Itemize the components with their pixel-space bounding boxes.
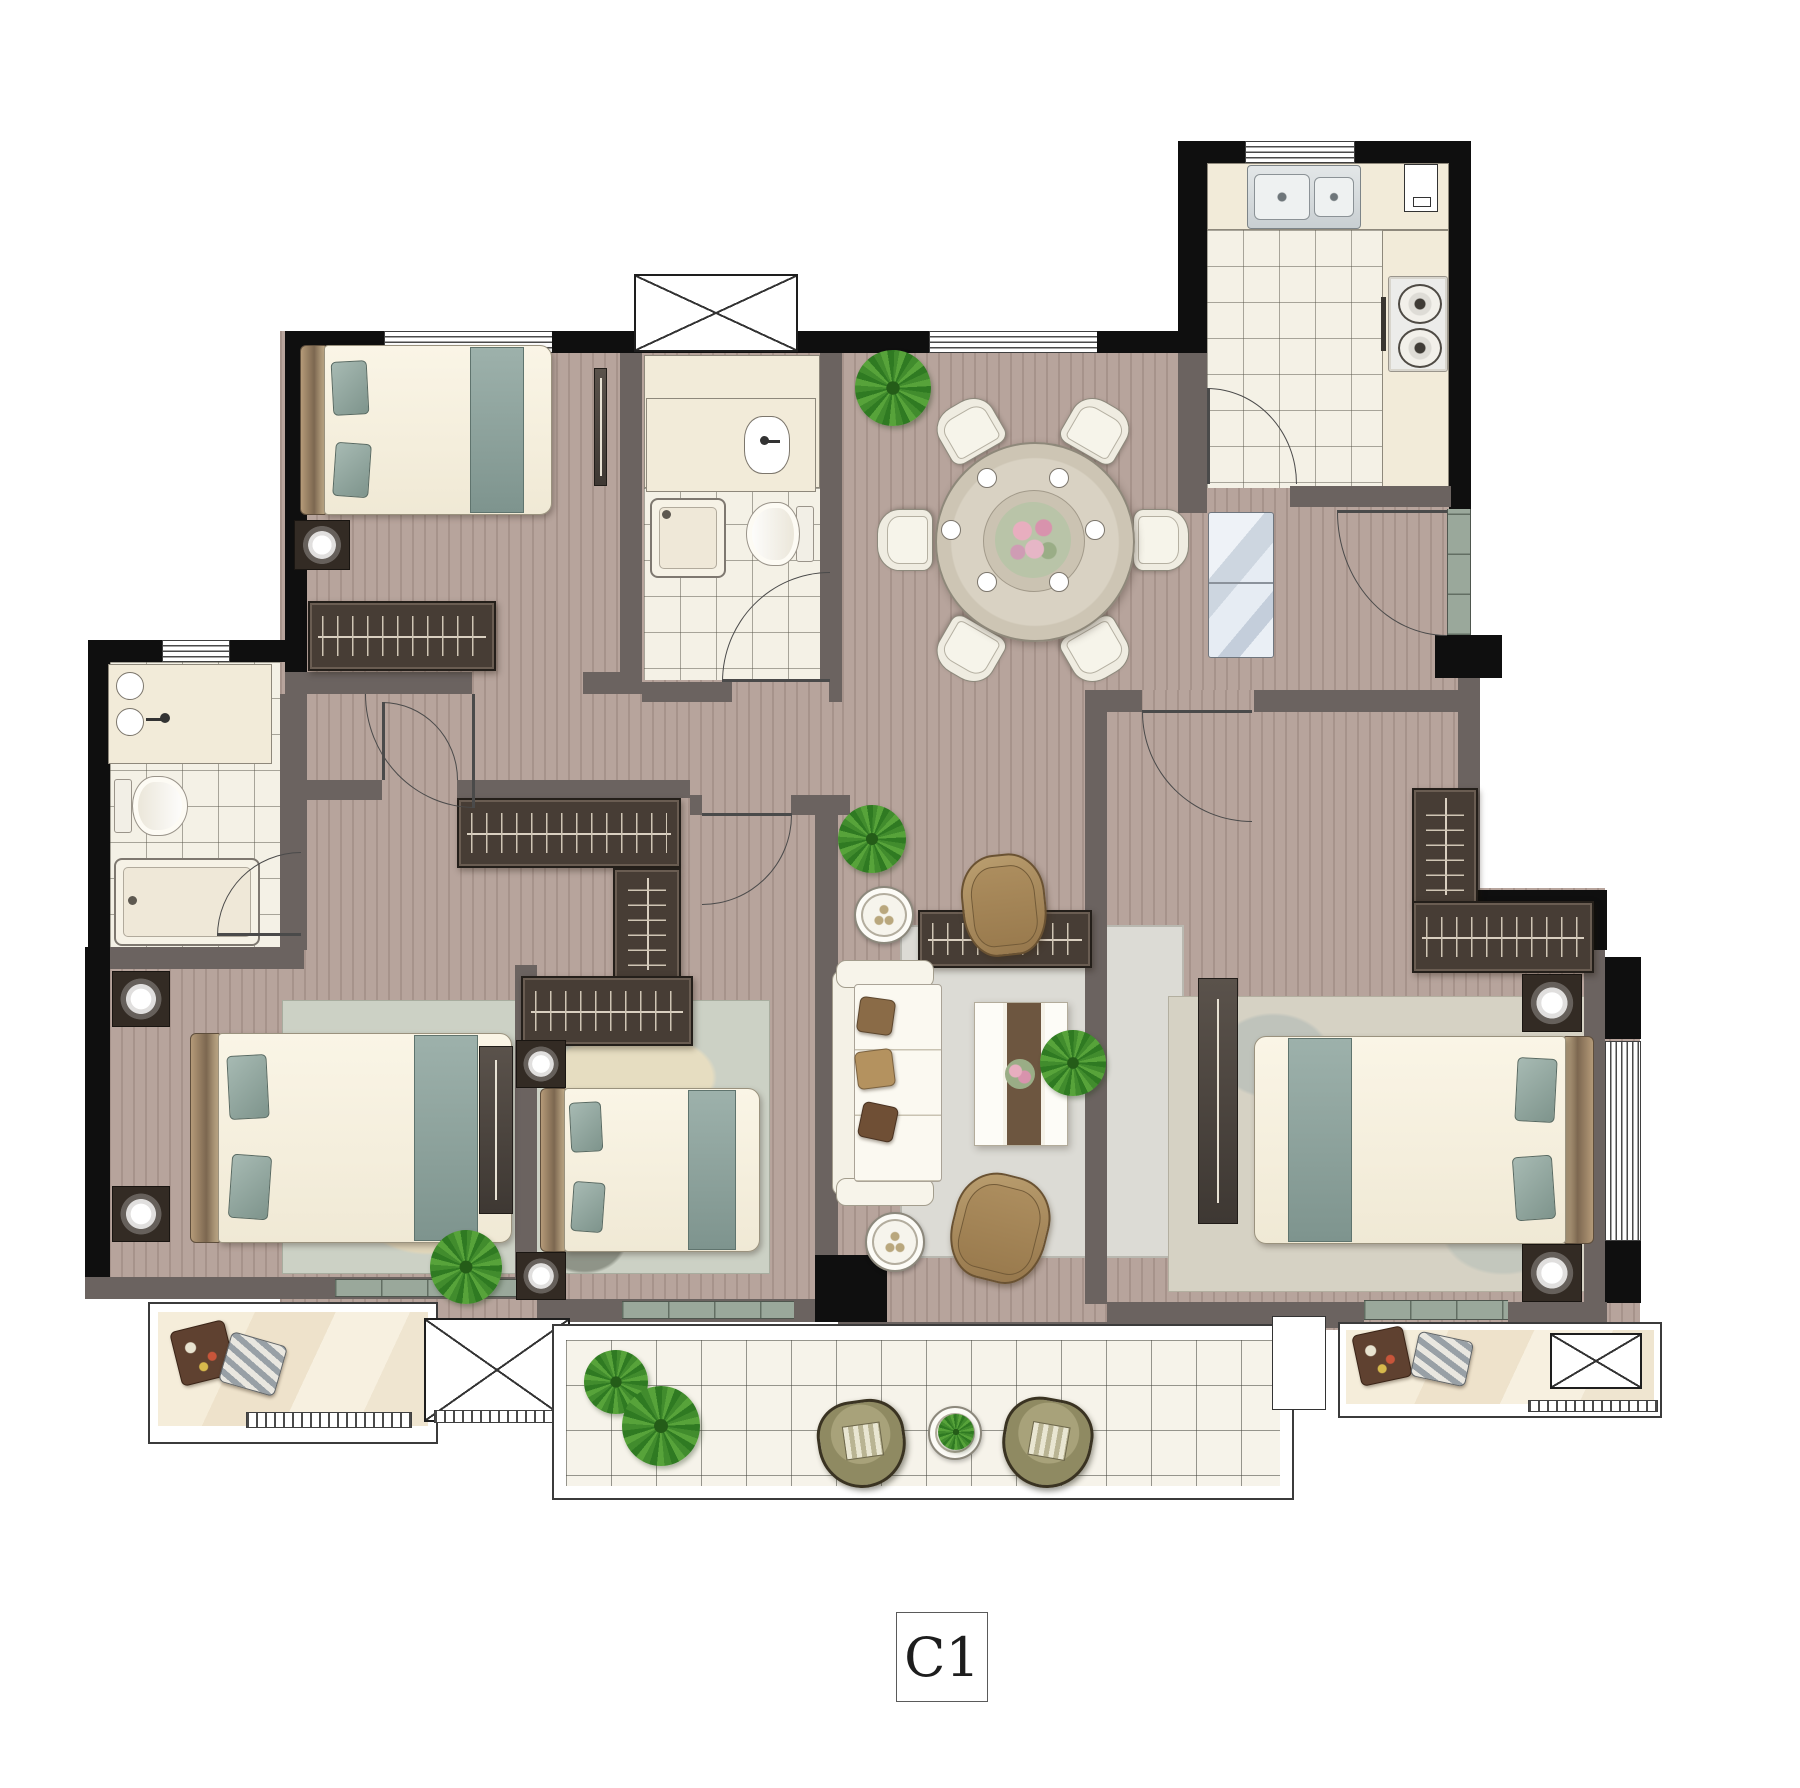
floor-plan-canvas: C1 bbox=[0, 0, 1800, 1788]
toilet-bathroom-left bbox=[114, 776, 188, 834]
place-setting bbox=[1049, 572, 1069, 592]
sink bbox=[744, 416, 790, 474]
wall bbox=[1107, 690, 1142, 712]
wardrobe-corridor-vertical bbox=[613, 868, 681, 980]
pillow bbox=[332, 442, 372, 498]
railing bbox=[1528, 1400, 1658, 1412]
window-bedroom-right-bay bbox=[1605, 1041, 1641, 1241]
plant-dining bbox=[855, 350, 931, 426]
sofa-pillow bbox=[857, 1101, 900, 1144]
bed-runner bbox=[1288, 1038, 1352, 1242]
railing bbox=[434, 1410, 560, 1423]
sink bbox=[116, 672, 144, 700]
door-leaf bbox=[1142, 710, 1252, 713]
door-leaf bbox=[1207, 388, 1210, 484]
stove-controls bbox=[1381, 297, 1386, 351]
wardrobe-bedroom-top-left bbox=[308, 601, 496, 671]
tv-console-master bbox=[479, 1046, 513, 1214]
toilet-bowl bbox=[746, 502, 800, 566]
unit-label-box: C1 bbox=[896, 1612, 988, 1702]
headboard bbox=[540, 1088, 566, 1252]
door-leaf bbox=[382, 702, 385, 780]
faucet-dot bbox=[160, 713, 170, 723]
kitchen-appliance bbox=[1404, 164, 1438, 212]
pillow bbox=[1512, 1155, 1556, 1222]
duct-shaft-bottom-left bbox=[424, 1318, 570, 1422]
plant bbox=[622, 1386, 700, 1466]
wardrobe-bedroom-right bbox=[1412, 901, 1594, 973]
burner bbox=[1398, 284, 1442, 324]
nightstand-lamp bbox=[1522, 974, 1582, 1032]
bed-bedroom-mid bbox=[540, 1088, 760, 1252]
appliance-handle bbox=[1413, 197, 1431, 207]
door-leaf bbox=[702, 813, 792, 816]
pillow bbox=[569, 1101, 604, 1153]
pillow bbox=[1514, 1057, 1557, 1123]
wall-kitchen-bottom bbox=[1290, 486, 1451, 507]
sink-bowl-right bbox=[1314, 177, 1354, 217]
place-setting bbox=[1085, 520, 1105, 540]
wall bbox=[1355, 141, 1451, 163]
wall bbox=[85, 947, 110, 1299]
window-dining bbox=[929, 331, 1099, 353]
nightstand-lamp bbox=[112, 971, 170, 1027]
cushion bbox=[1351, 1325, 1413, 1387]
dining-chair bbox=[1133, 509, 1189, 571]
wall bbox=[1178, 141, 1207, 353]
place-setting bbox=[1049, 468, 1069, 488]
wall bbox=[829, 682, 842, 702]
duct-shaft-top bbox=[634, 274, 798, 352]
wall bbox=[642, 682, 732, 702]
wall bbox=[88, 662, 110, 949]
wall bbox=[796, 331, 931, 353]
balcony-left-railing bbox=[246, 1412, 412, 1428]
tv-panel bbox=[594, 368, 607, 486]
wall bbox=[1254, 690, 1478, 712]
wall bbox=[791, 795, 850, 815]
threshold-bedroom-mid-balcony bbox=[622, 1301, 794, 1319]
wall bbox=[1178, 353, 1207, 513]
wall bbox=[583, 672, 642, 694]
wardrobe-bedroom-right-vertical bbox=[1412, 788, 1478, 905]
table-flowers bbox=[1005, 1059, 1035, 1089]
unit-label: C1 bbox=[904, 1626, 980, 1689]
window-bathroom-left bbox=[162, 640, 230, 662]
faucet-dot bbox=[760, 436, 769, 445]
headboard bbox=[190, 1033, 220, 1243]
door-leaf bbox=[217, 933, 301, 936]
burner bbox=[1398, 328, 1442, 368]
refrigerator bbox=[1208, 512, 1274, 658]
nightstand-lamp bbox=[516, 1252, 566, 1300]
wall bbox=[230, 640, 302, 662]
dining-chair bbox=[877, 509, 933, 571]
wall bbox=[285, 672, 472, 694]
kitchen-sink bbox=[1247, 165, 1361, 229]
side-table bbox=[854, 886, 914, 944]
place-setting bbox=[941, 520, 961, 540]
lounge-cushion bbox=[1027, 1421, 1070, 1461]
pillow bbox=[228, 1154, 272, 1221]
threshold-bedroom-right-balcony bbox=[1364, 1300, 1508, 1320]
sink-bowl-left bbox=[1254, 174, 1310, 220]
headboard bbox=[1564, 1036, 1594, 1244]
nightstand-lamp bbox=[112, 1186, 170, 1242]
pillow bbox=[331, 360, 370, 416]
place-setting bbox=[977, 572, 997, 592]
tv-console-bedroom-right bbox=[1198, 978, 1238, 1224]
wardrobe-bedroom-mid bbox=[521, 976, 693, 1046]
toilet-tank bbox=[114, 779, 132, 833]
wall bbox=[1605, 957, 1641, 1039]
wall bbox=[690, 795, 702, 815]
gas-stove bbox=[1388, 276, 1448, 372]
place-setting bbox=[977, 468, 997, 488]
wall bbox=[1207, 141, 1245, 163]
bed-master bbox=[190, 1033, 512, 1243]
bed-runner bbox=[688, 1090, 736, 1250]
sofa-pillow bbox=[856, 996, 897, 1037]
wall bbox=[457, 780, 690, 798]
exterior-right-edge bbox=[1641, 690, 1800, 1330]
side-table bbox=[865, 1212, 925, 1272]
wall-living-bedroom-right bbox=[1085, 690, 1107, 1304]
door-leaf bbox=[1337, 510, 1447, 513]
fridge-divider bbox=[1209, 582, 1273, 584]
door-leaf bbox=[722, 679, 830, 682]
sofa bbox=[832, 960, 944, 1204]
flower-centerpiece bbox=[995, 502, 1071, 578]
wall bbox=[88, 640, 162, 662]
bed-bedroom-right bbox=[1254, 1036, 1594, 1244]
vanity-counter bbox=[646, 398, 816, 492]
nightstand-lamp bbox=[294, 520, 350, 570]
wall bbox=[1605, 1241, 1641, 1303]
pillow bbox=[226, 1054, 269, 1120]
entry-threshold bbox=[1447, 509, 1471, 635]
wall bbox=[307, 780, 382, 800]
wall bbox=[1508, 1302, 1607, 1322]
bed-runner bbox=[414, 1035, 478, 1241]
sofa-arm bbox=[836, 1178, 934, 1206]
wall-kitchen-right bbox=[1449, 141, 1471, 509]
wall bbox=[1435, 635, 1502, 678]
sofa-pillow bbox=[854, 1048, 896, 1090]
door-leaf bbox=[472, 694, 475, 808]
nightstand-lamp bbox=[516, 1040, 566, 1088]
toilet-bathroom-center bbox=[746, 502, 814, 564]
pillow bbox=[570, 1181, 605, 1233]
toilet-bowl bbox=[132, 776, 188, 836]
plant-living-bottom bbox=[1040, 1030, 1106, 1096]
shaft-box-mid bbox=[1272, 1316, 1326, 1410]
duct-shaft-bottom-right bbox=[1550, 1333, 1642, 1389]
sink bbox=[116, 708, 144, 736]
plant bbox=[430, 1230, 502, 1304]
wardrobe-corridor bbox=[457, 798, 681, 868]
nightstand-lamp bbox=[1522, 1244, 1582, 1302]
plant-living-top bbox=[838, 805, 906, 873]
wall-bedroom1-right bbox=[620, 353, 642, 694]
plant-small bbox=[938, 1414, 974, 1450]
window-kitchen bbox=[1245, 141, 1355, 163]
wall bbox=[110, 947, 304, 969]
bed-runner bbox=[470, 347, 524, 513]
bed-bedroom-top-left bbox=[300, 345, 552, 515]
shower-bathroom-center bbox=[650, 498, 726, 578]
lounge-cushion bbox=[842, 1422, 884, 1461]
headboard bbox=[300, 345, 326, 515]
